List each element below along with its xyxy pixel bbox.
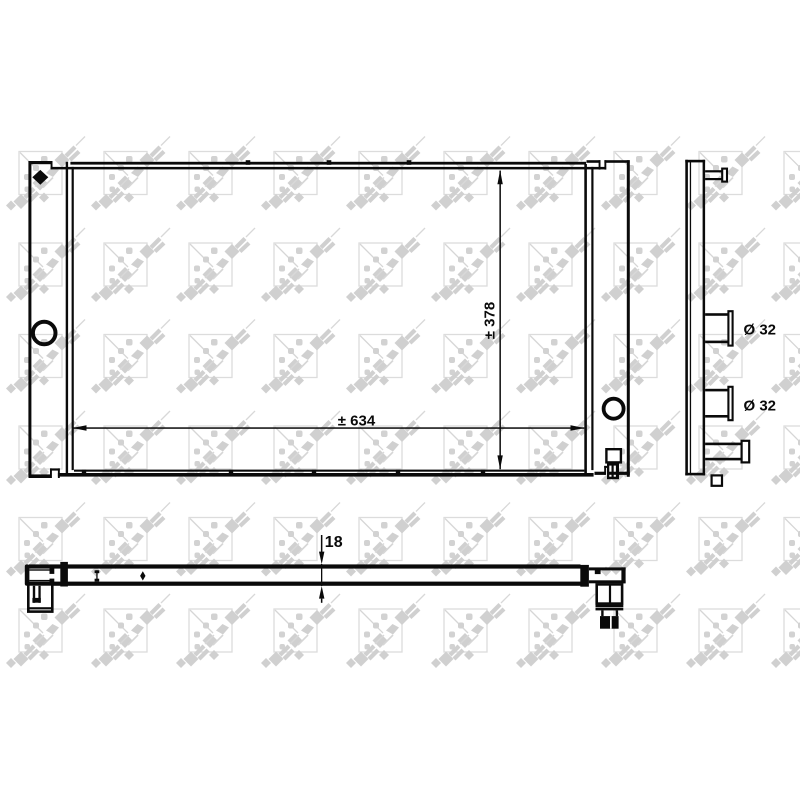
svg-text:± 634: ± 634 (338, 413, 376, 430)
svg-text:Ø 32: Ø 32 (744, 398, 777, 415)
svg-text:± 378: ± 378 (482, 302, 499, 339)
svg-text:Ø 32: Ø 32 (744, 322, 777, 339)
svg-text:18: 18 (325, 534, 343, 551)
